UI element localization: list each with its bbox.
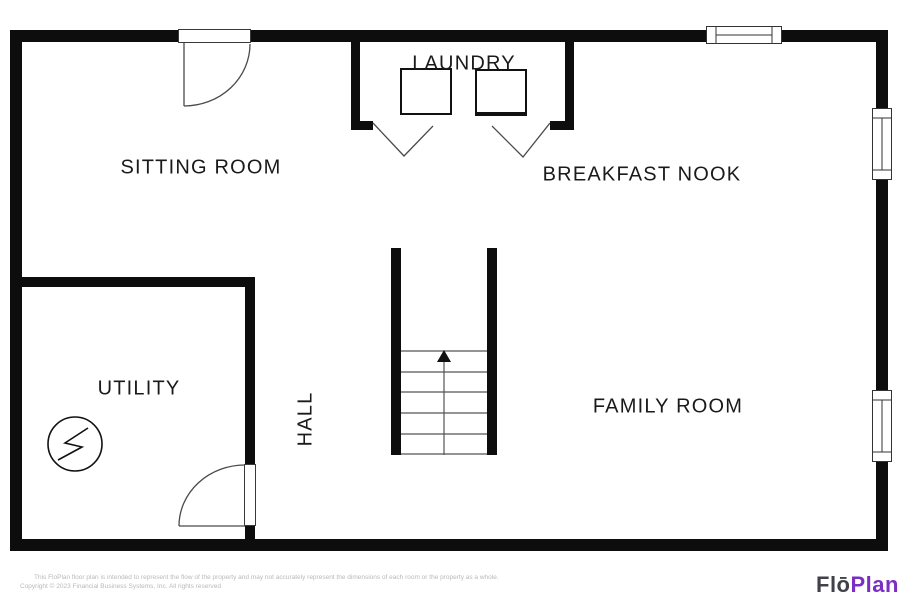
- dryer: [475, 69, 527, 116]
- floplan-logo-flo: Flō: [816, 572, 851, 597]
- room-label-hall: HALL: [295, 392, 318, 447]
- bifold-door-icon: [492, 123, 550, 157]
- swing-door-icon: [179, 465, 245, 526]
- up-arrow-icon: [437, 350, 451, 455]
- electrical-bolt-icon: [48, 417, 102, 471]
- wall-bottom: [10, 539, 888, 551]
- wall-top-middle-segment: [251, 30, 706, 42]
- wall-top-left-segment: [10, 30, 178, 42]
- wall-stairs-right: [487, 248, 497, 455]
- wall-left: [10, 30, 22, 551]
- wall-utility-right: [245, 277, 255, 465]
- right-window-upper: [872, 108, 892, 180]
- floor-plan: SITTING ROOM LAUNDRY BREAKFAST NOOK UTIL…: [0, 0, 900, 600]
- wall-laundry-right: [565, 42, 574, 130]
- copyright-text: Copyright © 2023 Financial Business Syst…: [20, 583, 499, 592]
- footer-legal: This FloPlan floor plan is intended to r…: [20, 574, 499, 591]
- swing-door-icon: [184, 43, 250, 106]
- right-window-lower: [872, 390, 892, 462]
- bifold-door-icon: [373, 123, 433, 156]
- wall-laundry-left: [351, 42, 360, 130]
- disclaimer-text: This FloPlan floor plan is intended to r…: [34, 574, 499, 583]
- wall-laundry-right-stub: [550, 121, 574, 130]
- room-label-laundry: LAUNDRY: [412, 53, 516, 76]
- staircase: [401, 351, 487, 454]
- utility-door-leaf: [244, 464, 256, 526]
- wall-laundry-left-stub: [351, 121, 373, 130]
- room-label-utility: UTILITY: [98, 378, 181, 401]
- floplan-logo: FlōPlan: [816, 572, 899, 598]
- floplan-logo-plan: Plan: [851, 572, 899, 597]
- top-window: [706, 26, 782, 44]
- sitting-room-door-opening: [178, 29, 251, 43]
- wall-utility-top: [22, 277, 255, 287]
- window-mullions: [716, 27, 891, 452]
- room-label-sitting-room: SITTING ROOM: [120, 157, 281, 180]
- room-label-breakfast-nook: BREAKFAST NOOK: [543, 164, 742, 187]
- wall-stairs-left: [391, 248, 401, 455]
- room-label-family-room: FAMILY ROOM: [593, 396, 743, 419]
- wall-top-right-segment: [782, 30, 888, 42]
- wall-utility-door-stub: [245, 526, 255, 539]
